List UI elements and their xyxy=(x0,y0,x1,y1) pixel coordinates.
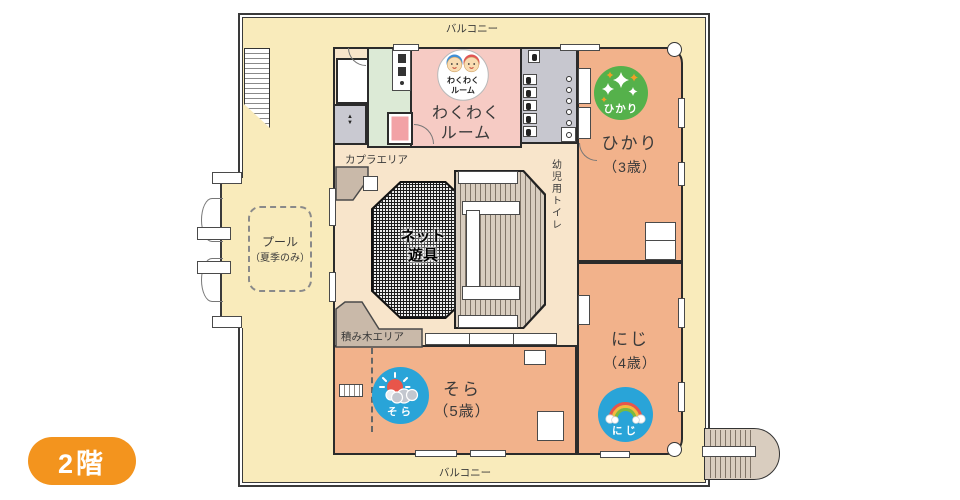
wakuwaku-badge: わくわく ルーム xyxy=(437,49,489,101)
floorplan-2f: バルコニー バルコニー ▲▼ 幼児用トイレ カプラエリア xyxy=(0,0,960,500)
stair-rail-lower xyxy=(462,286,520,300)
toilet-stall xyxy=(523,100,537,111)
toilet-basin xyxy=(561,127,576,142)
stair-entry-top xyxy=(458,171,518,184)
sora-shelf xyxy=(524,350,546,365)
window-marker xyxy=(329,272,336,302)
column xyxy=(667,42,682,57)
pool-label-line2: （夏季のみ） xyxy=(250,251,310,266)
left-stair-landing xyxy=(197,261,231,274)
niji-room-label: にじ xyxy=(577,329,683,350)
left-stair-landing xyxy=(212,316,242,328)
tsumiki-area-label: 積み木エリア xyxy=(341,331,421,344)
elevator: ▲▼ xyxy=(333,104,367,145)
toilet-sink xyxy=(566,120,572,126)
sora-ladder xyxy=(339,384,363,397)
niji-badge: にじ xyxy=(597,386,654,443)
window-marker xyxy=(678,298,685,328)
stove-icon xyxy=(398,67,406,76)
window-marker xyxy=(560,44,600,51)
niji-badge-label: にじ xyxy=(612,425,639,437)
toilet-stall xyxy=(523,126,537,137)
column xyxy=(667,442,682,457)
hikari-age-label: （3歳） xyxy=(577,159,683,177)
stove-icon xyxy=(398,54,406,63)
hikari-shelf xyxy=(578,68,591,104)
window-marker xyxy=(415,450,457,457)
window-marker xyxy=(600,451,630,458)
toilet-sink xyxy=(566,98,572,104)
niji-shelf xyxy=(578,295,590,325)
wakuwaku-room-label: わくわく ルーム xyxy=(410,104,522,144)
window-marker xyxy=(329,188,336,226)
wakuwaku-label-line2: ルーム xyxy=(410,124,522,144)
niji-age-label: （4歳） xyxy=(577,355,683,373)
toilet-sink xyxy=(566,76,572,82)
kapla-box xyxy=(363,176,378,191)
left-stair-landing xyxy=(212,172,242,184)
wakuwaku-badge-line1: わくわく xyxy=(447,76,479,85)
toilet-stall xyxy=(523,87,537,98)
left-stair-landing xyxy=(197,227,231,240)
toilet-sink xyxy=(566,109,572,115)
sora-badge: そら xyxy=(371,366,430,425)
hikari-badge: ひかり xyxy=(593,65,649,121)
shelf-row xyxy=(425,333,557,345)
sora-badge-label: そら xyxy=(387,406,414,418)
toilet-stall xyxy=(528,50,540,63)
hikari-badge-label: ひかり xyxy=(604,103,639,115)
wakuwaku-badge-line2: ルーム xyxy=(451,86,475,95)
balcony-label-bottom: バルコニー xyxy=(385,467,545,480)
left-bay xyxy=(220,178,244,328)
balcony-label-top: バルコニー xyxy=(392,23,552,36)
stair-void xyxy=(466,210,480,295)
pool-area: プール （夏季のみ） xyxy=(248,206,312,292)
window-marker xyxy=(678,98,685,128)
hikari-niji-closet xyxy=(645,222,676,260)
toilet-stall xyxy=(523,74,537,85)
exterior-stair-landing xyxy=(702,446,756,457)
window-marker xyxy=(678,382,685,412)
floor-badge: 2階 xyxy=(28,437,136,485)
wakuwaku-label-line1: わくわく xyxy=(410,104,522,124)
pool-label-line1: プール xyxy=(250,233,310,251)
toilet-sink xyxy=(566,87,572,93)
kapla-area-label: カプラエリア xyxy=(345,154,411,167)
toilet-stall xyxy=(523,113,537,124)
sink-dot xyxy=(400,81,404,85)
sora-closet xyxy=(537,411,564,441)
stair-entry-bottom xyxy=(458,315,518,328)
toilet-area-label: 幼児用トイレ xyxy=(548,147,561,242)
kitchen-counter xyxy=(392,49,411,91)
window-marker xyxy=(393,44,419,51)
hikari-room-label: ひかり xyxy=(577,133,683,154)
window-marker xyxy=(470,450,506,457)
